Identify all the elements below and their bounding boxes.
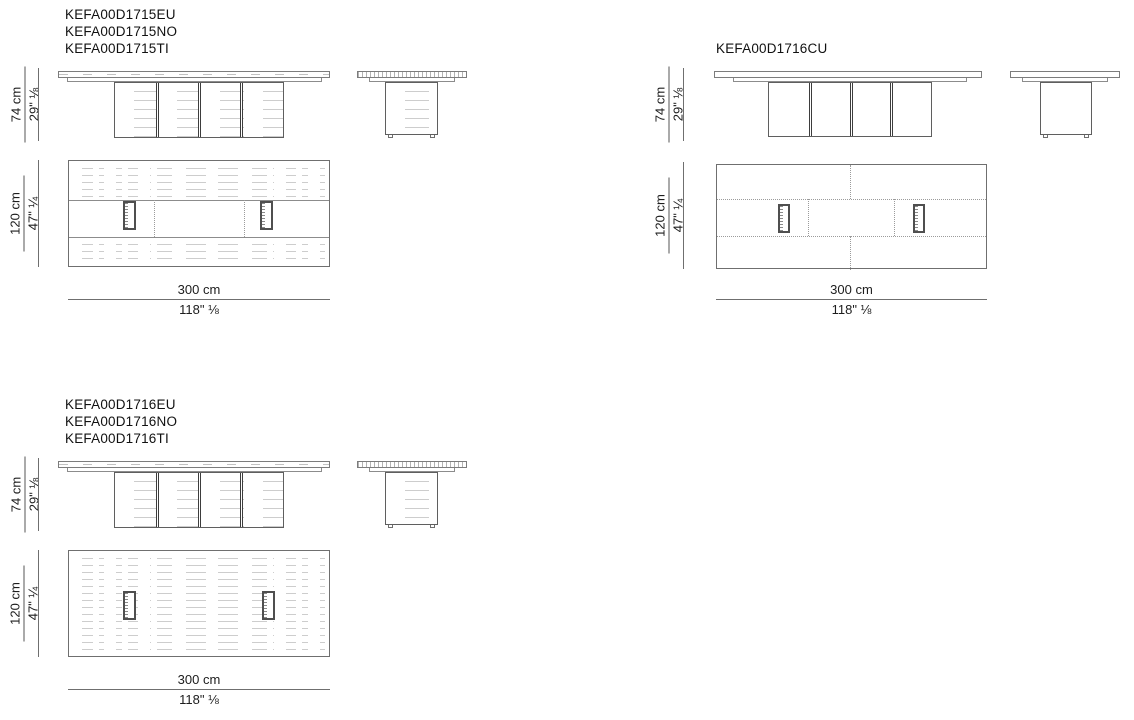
- cable-grommet: [123, 201, 136, 230]
- width-imperial: 118" ⅛: [68, 300, 330, 317]
- base-foot: [430, 525, 435, 528]
- center-seam-dotted-line: [850, 165, 851, 199]
- pedestal-base-front-view: [768, 82, 932, 137]
- tabletop-side-view: [357, 461, 467, 468]
- pedestal-base-side-view: [385, 82, 438, 135]
- height-dimension-line: [38, 458, 39, 531]
- tabletop-side-view: [1010, 71, 1120, 78]
- cable-grommet: [123, 591, 136, 620]
- width-dimension: 300 cm 118" ⅛: [716, 282, 987, 317]
- product-code: KEFA00D1715EU: [65, 6, 177, 23]
- grommet-slot: [262, 203, 265, 228]
- base-panel-joint: [240, 83, 243, 137]
- depth-metric: 120 cm: [653, 178, 670, 254]
- depth-dimension-label: 120 cm 47" ¼: [8, 566, 41, 642]
- width-dimension: 300 cm 118" ⅛: [68, 672, 330, 707]
- base-panel-joint: [198, 473, 201, 527]
- tabletop-plan-view: [716, 164, 987, 269]
- height-dimension-line: [683, 68, 684, 141]
- depth-metric: 120 cm: [8, 176, 25, 252]
- tabletop-plan-view: [68, 550, 330, 657]
- width-dimension: 300 cm 118" ⅛: [68, 282, 330, 317]
- product-code: KEFA00D1715TI: [65, 40, 177, 57]
- pedestal-base-side-view: [385, 472, 438, 525]
- depth-dimension-label: 120 cm 47" ¼: [653, 178, 686, 254]
- base-foot: [1084, 135, 1089, 138]
- seam-dotted-line: [717, 236, 986, 237]
- seam-dotted-line: [894, 199, 895, 236]
- base-foot: [388, 525, 393, 528]
- pedestal-base-front-view: [114, 82, 284, 138]
- depth-dimension-label: 120 cm 47" ¼: [8, 176, 41, 252]
- height-metric: 74 cm: [9, 67, 26, 143]
- product-code: KEFA00D1716CU: [716, 40, 827, 57]
- width-metric: 300 cm: [68, 282, 330, 299]
- technical-drawing-sheet: KEFA00D1715EU KEFA00D1715NO KEFA00D1715T…: [0, 0, 1134, 720]
- base-panel-joint: [850, 83, 853, 136]
- wood-grain-band-top: [70, 162, 328, 199]
- grommet-slot: [125, 203, 128, 228]
- center-seam-dotted-line: [850, 236, 851, 270]
- depth-dimension-line: [38, 550, 39, 657]
- grommet-slot: [780, 206, 783, 231]
- width-imperial: 118" ⅛: [68, 690, 330, 707]
- height-dimension-label: 74 cm 29" ⅛: [653, 67, 686, 143]
- width-imperial: 118" ⅛: [716, 300, 987, 317]
- product-codes-group-3: KEFA00D1716EU KEFA00D1716NO KEFA00D1716T…: [65, 396, 177, 447]
- cable-grommet: [778, 204, 790, 233]
- height-metric: 74 cm: [653, 67, 670, 143]
- seam-dotted-line: [717, 199, 986, 200]
- product-code: KEFA00D1716NO: [65, 413, 177, 430]
- tabletop-front-view: [58, 461, 330, 468]
- base-panel-joint: [156, 473, 159, 527]
- cable-grommet: [260, 201, 273, 230]
- tabletop-front-view: [714, 71, 982, 78]
- grommet-slot: [125, 593, 128, 618]
- inlay-band-edge: [69, 200, 329, 201]
- height-dimension-label: 74 cm 29" ⅛: [9, 457, 42, 533]
- inlay-band-edge: [69, 237, 329, 238]
- tabletop-side-view: [357, 71, 467, 78]
- base-panel-joint: [156, 83, 159, 137]
- wood-grain-surface: [70, 552, 328, 655]
- pedestal-base-side-view: [1040, 82, 1092, 135]
- cable-grommet: [262, 591, 275, 620]
- base-panel-joint: [240, 473, 243, 527]
- base-foot: [388, 135, 393, 138]
- depth-dimension-line: [38, 160, 39, 267]
- height-imperial: 29" ⅛: [26, 67, 42, 143]
- base-foot: [430, 135, 435, 138]
- height-dimension-line: [38, 68, 39, 141]
- height-dimension-label: 74 cm 29" ⅛: [9, 67, 42, 143]
- width-metric: 300 cm: [716, 282, 987, 299]
- leaf-seam-dotted-line: [154, 200, 155, 237]
- width-metric: 300 cm: [68, 672, 330, 689]
- product-codes-group-1: KEFA00D1715EU KEFA00D1715NO KEFA00D1715T…: [65, 6, 177, 57]
- seam-dotted-line: [808, 199, 809, 236]
- base-foot: [1043, 135, 1048, 138]
- tabletop-plan-view: [68, 160, 330, 267]
- base-panel-joint: [890, 83, 893, 136]
- grommet-slot: [264, 593, 267, 618]
- grommet-slot: [915, 206, 918, 231]
- product-codes-group-2: KEFA00D1716CU: [716, 40, 827, 57]
- tabletop-front-view: [58, 71, 330, 78]
- cable-grommet: [913, 204, 925, 233]
- base-panel-joint: [809, 83, 812, 136]
- depth-dimension-line: [683, 162, 684, 269]
- height-metric: 74 cm: [9, 457, 26, 533]
- depth-metric: 120 cm: [8, 566, 25, 642]
- product-code: KEFA00D1716EU: [65, 396, 177, 413]
- wood-grain-band-bottom: [70, 238, 328, 265]
- height-imperial: 29" ⅛: [26, 457, 42, 533]
- product-code: KEFA00D1715NO: [65, 23, 177, 40]
- pedestal-base-front-view: [114, 472, 284, 528]
- base-panel-joint: [198, 83, 201, 137]
- leaf-seam-dotted-line: [244, 200, 245, 237]
- product-code: KEFA00D1716TI: [65, 430, 177, 447]
